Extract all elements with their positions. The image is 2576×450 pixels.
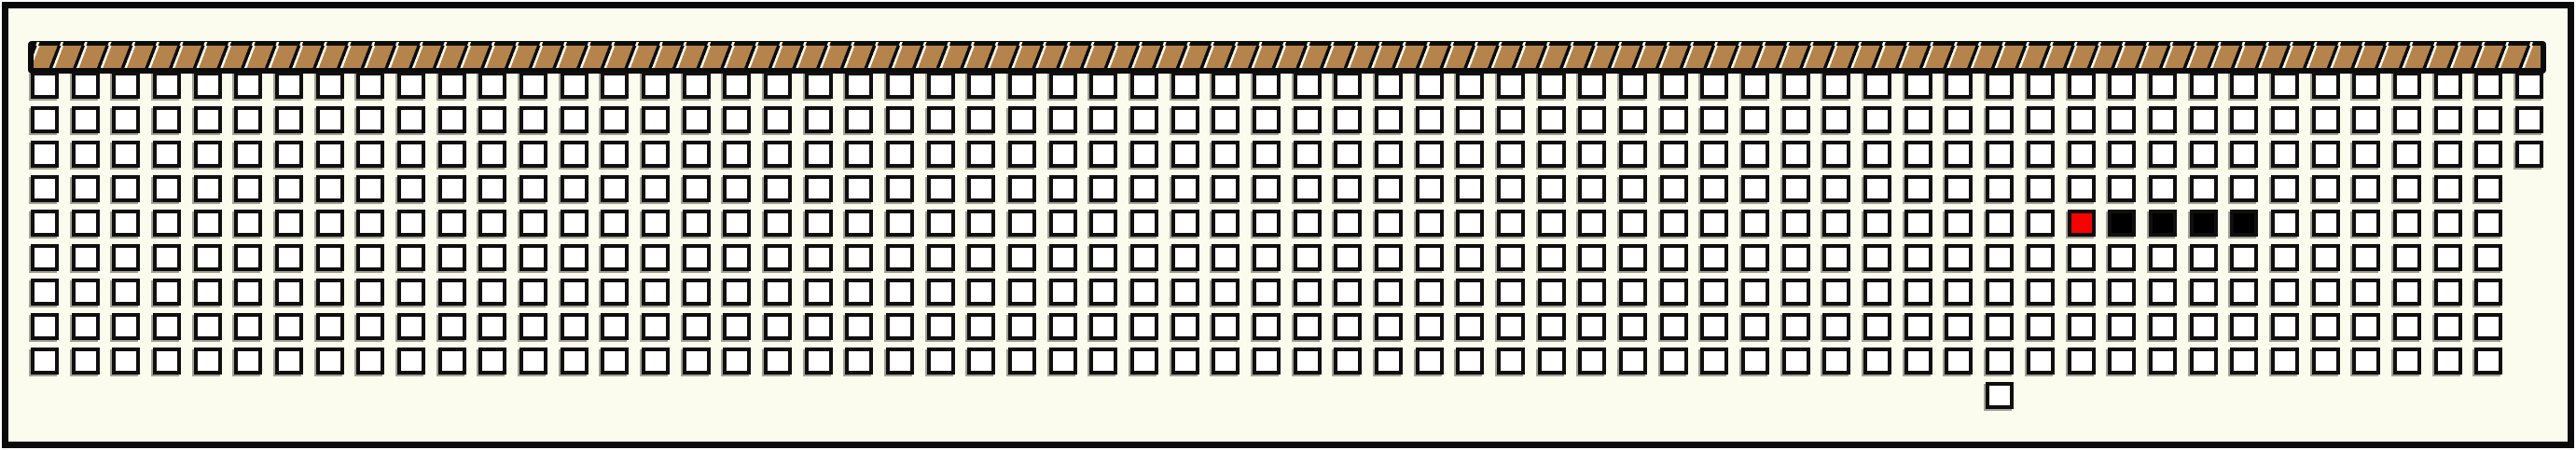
cell-empty[interactable] — [2474, 106, 2502, 133]
cell-empty[interactable] — [561, 210, 589, 237]
cell-empty[interactable] — [1089, 279, 1117, 306]
cell-empty[interactable] — [1130, 348, 1158, 375]
cell-empty[interactable] — [519, 313, 547, 340]
cell-empty[interactable] — [805, 279, 833, 306]
cell-empty[interactable] — [683, 106, 711, 133]
cell-empty[interactable] — [2474, 72, 2502, 99]
cell-empty[interactable] — [1008, 348, 1036, 375]
cell-empty[interactable] — [1660, 106, 1688, 133]
cell-empty[interactable] — [1171, 348, 1199, 375]
cell-empty[interactable] — [438, 279, 466, 306]
cell-empty[interactable] — [1294, 244, 1322, 271]
cell-empty[interactable] — [478, 244, 506, 271]
cell-empty[interactable] — [764, 210, 792, 237]
cell-empty[interactable] — [112, 244, 140, 271]
cell-empty[interactable] — [2312, 210, 2340, 237]
cell-empty[interactable] — [764, 141, 792, 168]
cell-empty[interactable] — [2474, 175, 2502, 202]
cell-empty[interactable] — [2474, 141, 2502, 168]
cell-empty[interactable] — [642, 279, 670, 306]
cell-empty[interactable] — [316, 348, 344, 375]
cell-empty[interactable] — [1660, 244, 1688, 271]
cell-empty[interactable] — [153, 210, 181, 237]
cell-empty[interactable] — [2230, 72, 2258, 99]
cell-empty[interactable] — [805, 348, 833, 375]
cell-empty[interactable] — [1700, 106, 1728, 133]
cell-empty[interactable] — [2190, 279, 2218, 306]
cell-empty[interactable] — [2027, 244, 2055, 271]
cell-empty[interactable] — [1212, 72, 1240, 99]
cell-empty[interactable] — [1904, 210, 1932, 237]
cell-empty[interactable] — [561, 141, 589, 168]
cell-empty[interactable] — [1334, 210, 1362, 237]
cell-empty[interactable] — [1660, 72, 1688, 99]
cell-empty[interactable] — [1700, 313, 1728, 340]
cell-empty[interactable] — [1863, 210, 1891, 237]
cell-empty[interactable] — [1334, 141, 1362, 168]
cell-empty[interactable] — [194, 141, 222, 168]
cell-empty[interactable] — [723, 106, 751, 133]
cell-empty[interactable] — [2434, 141, 2462, 168]
cell-empty[interactable] — [845, 175, 873, 202]
cell-empty[interactable] — [1334, 72, 1362, 99]
cell-empty[interactable] — [886, 72, 914, 99]
cell-empty[interactable] — [1294, 141, 1322, 168]
cell-empty[interactable] — [356, 175, 384, 202]
cell-empty[interactable] — [2312, 141, 2340, 168]
cell-empty[interactable] — [1619, 210, 1647, 237]
cell-empty[interactable] — [1008, 210, 1036, 237]
cell-empty[interactable] — [316, 279, 344, 306]
cell-empty[interactable] — [1822, 210, 1850, 237]
cell-empty[interactable] — [1049, 210, 1077, 237]
cell-empty[interactable] — [2108, 313, 2136, 340]
cell-empty[interactable] — [1456, 348, 1484, 375]
cell-empty[interactable] — [1049, 72, 1077, 99]
cell-empty[interactable] — [2068, 106, 2096, 133]
cell-empty[interactable] — [31, 175, 59, 202]
cell-empty[interactable] — [723, 175, 751, 202]
cell-empty[interactable] — [845, 279, 873, 306]
cell-empty[interactable] — [519, 348, 547, 375]
cell-empty[interactable] — [1456, 175, 1484, 202]
cell-empty[interactable] — [1700, 141, 1728, 168]
cell-empty[interactable] — [31, 210, 59, 237]
cell-empty[interactable] — [397, 244, 425, 271]
cell-empty[interactable] — [764, 72, 792, 99]
cell-empty[interactable] — [1782, 348, 1810, 375]
cell-empty[interactable] — [194, 175, 222, 202]
cell-empty[interactable] — [1008, 175, 1036, 202]
cell-empty[interactable] — [1782, 175, 1810, 202]
cell-empty[interactable] — [2393, 141, 2421, 168]
cell-empty[interactable] — [2027, 348, 2055, 375]
cell-empty[interactable] — [31, 106, 59, 133]
cell-empty[interactable] — [1416, 279, 1444, 306]
cell-empty[interactable] — [397, 141, 425, 168]
cell-empty[interactable] — [2271, 348, 2299, 375]
cell-empty[interactable] — [2230, 279, 2258, 306]
cell-empty[interactable] — [478, 348, 506, 375]
cell-empty[interactable] — [927, 313, 955, 340]
cell-empty[interactable] — [1375, 313, 1403, 340]
cell-empty[interactable] — [2149, 141, 2177, 168]
cell-empty[interactable] — [1008, 106, 1036, 133]
cell-empty[interactable] — [2230, 244, 2258, 271]
cell-empty[interactable] — [2271, 175, 2299, 202]
cell-empty[interactable] — [2068, 348, 2096, 375]
cell-empty[interactable] — [1782, 106, 1810, 133]
cell-empty[interactable] — [234, 106, 262, 133]
cell-empty[interactable] — [1578, 72, 1606, 99]
cell-empty[interactable] — [1375, 348, 1403, 375]
cell-empty[interactable] — [2027, 141, 2055, 168]
cell-empty[interactable] — [234, 348, 262, 375]
cell-empty[interactable] — [2352, 106, 2380, 133]
cell-empty[interactable] — [2230, 313, 2258, 340]
cell-empty[interactable] — [2434, 313, 2462, 340]
cell-empty[interactable] — [2312, 72, 2340, 99]
cell-empty[interactable] — [2027, 313, 2055, 340]
cell-empty[interactable] — [1416, 244, 1444, 271]
cell-empty[interactable] — [153, 141, 181, 168]
cell-empty[interactable] — [2271, 106, 2299, 133]
cell-empty[interactable] — [2108, 175, 2136, 202]
cell-empty[interactable] — [1049, 141, 1077, 168]
cell-empty[interactable] — [927, 279, 955, 306]
cell-empty[interactable] — [967, 279, 995, 306]
cell-empty[interactable] — [683, 348, 711, 375]
cell-empty[interactable] — [2352, 279, 2380, 306]
cell-empty[interactable] — [1253, 244, 1281, 271]
cell-empty[interactable] — [234, 72, 262, 99]
cell-empty[interactable] — [1660, 175, 1688, 202]
cell-empty[interactable] — [1456, 313, 1484, 340]
cell-empty[interactable] — [2190, 72, 2218, 99]
cell-empty[interactable] — [764, 279, 792, 306]
cell-empty[interactable] — [1660, 141, 1688, 168]
cell-empty[interactable] — [519, 106, 547, 133]
cell-empty[interactable] — [1660, 313, 1688, 340]
cell-empty[interactable] — [927, 141, 955, 168]
cell-empty[interactable] — [1253, 210, 1281, 237]
cell-empty[interactable] — [601, 279, 629, 306]
cell-empty[interactable] — [1863, 313, 1891, 340]
cell-empty[interactable] — [1171, 72, 1199, 99]
cell-empty[interactable] — [642, 72, 670, 99]
cell-empty[interactable] — [1456, 244, 1484, 271]
cell-empty[interactable] — [316, 313, 344, 340]
cell-empty[interactable] — [1986, 141, 2014, 168]
cell-empty[interactable] — [1619, 72, 1647, 99]
cell-empty[interactable] — [234, 175, 262, 202]
cell-empty[interactable] — [886, 244, 914, 271]
cell-empty[interactable] — [2474, 313, 2502, 340]
cell-empty[interactable] — [316, 244, 344, 271]
cell-empty[interactable] — [31, 141, 59, 168]
cell-empty[interactable] — [601, 106, 629, 133]
cell-empty[interactable] — [356, 313, 384, 340]
cell-empty[interactable] — [2027, 175, 2055, 202]
cell-empty[interactable] — [194, 313, 222, 340]
cell-empty[interactable] — [2393, 106, 2421, 133]
cell-empty[interactable] — [2352, 210, 2380, 237]
cell-empty[interactable] — [1945, 72, 1973, 99]
cell-empty[interactable] — [1741, 175, 1769, 202]
cell-empty[interactable] — [1049, 313, 1077, 340]
cell-empty[interactable] — [845, 348, 873, 375]
cell-empty[interactable] — [561, 175, 589, 202]
cell-empty[interactable] — [561, 106, 589, 133]
cell-empty[interactable] — [438, 313, 466, 340]
cell-empty[interactable] — [1008, 244, 1036, 271]
cell-empty[interactable] — [1660, 279, 1688, 306]
cell-empty[interactable] — [683, 210, 711, 237]
cell-empty[interactable] — [1294, 348, 1322, 375]
cell-empty[interactable] — [927, 210, 955, 237]
cell-empty[interactable] — [805, 244, 833, 271]
cell-empty[interactable] — [805, 106, 833, 133]
cell-empty[interactable] — [397, 72, 425, 99]
cell-empty[interactable] — [1497, 175, 1525, 202]
cell-empty[interactable] — [1497, 279, 1525, 306]
cell-empty[interactable] — [1130, 244, 1158, 271]
cell-empty[interactable] — [72, 279, 100, 306]
cell-empty[interactable] — [1660, 348, 1688, 375]
cell-empty[interactable] — [478, 279, 506, 306]
cell-empty[interactable] — [1782, 279, 1810, 306]
cell-empty[interactable] — [275, 279, 303, 306]
cell-empty[interactable] — [805, 141, 833, 168]
cell-empty[interactable] — [397, 348, 425, 375]
cell-empty[interactable] — [478, 106, 506, 133]
cell-empty[interactable] — [112, 348, 140, 375]
cell-empty[interactable] — [1416, 106, 1444, 133]
cell-empty[interactable] — [1904, 106, 1932, 133]
cell-empty[interactable] — [601, 210, 629, 237]
cell-empty[interactable] — [112, 210, 140, 237]
cell-empty[interactable] — [1863, 348, 1891, 375]
cell-empty[interactable] — [1008, 72, 1036, 99]
cell-empty[interactable] — [1904, 348, 1932, 375]
cell-empty[interactable] — [764, 313, 792, 340]
cell-empty[interactable] — [927, 106, 955, 133]
cell-empty[interactable] — [2230, 141, 2258, 168]
cell-empty[interactable] — [478, 313, 506, 340]
cell-empty[interactable] — [316, 141, 344, 168]
cell-empty[interactable] — [845, 210, 873, 237]
cell-empty[interactable] — [723, 279, 751, 306]
cell-empty[interactable] — [601, 348, 629, 375]
cell-empty[interactable] — [1212, 313, 1240, 340]
cell-empty[interactable] — [1294, 106, 1322, 133]
cell-empty[interactable] — [397, 279, 425, 306]
cell-empty[interactable] — [2393, 72, 2421, 99]
cell-empty[interactable] — [1008, 279, 1036, 306]
cell-active[interactable] — [2068, 210, 2096, 237]
cell-empty[interactable] — [1497, 210, 1525, 237]
cell-empty[interactable] — [2027, 210, 2055, 237]
cell-empty[interactable] — [1822, 106, 1850, 133]
cell-empty[interactable] — [1578, 313, 1606, 340]
cell-empty[interactable] — [1456, 279, 1484, 306]
cell-empty[interactable] — [1375, 175, 1403, 202]
cell-empty[interactable] — [1212, 244, 1240, 271]
cell-empty[interactable] — [1497, 244, 1525, 271]
cell-empty[interactable] — [1660, 210, 1688, 237]
cell-empty[interactable] — [2474, 279, 2502, 306]
cell-empty[interactable] — [2271, 244, 2299, 271]
cell-empty[interactable] — [356, 141, 384, 168]
cell-empty[interactable] — [2068, 244, 2096, 271]
cell-empty[interactable] — [2352, 141, 2380, 168]
cell-empty[interactable] — [72, 106, 100, 133]
cell-empty[interactable] — [1700, 210, 1728, 237]
cell-empty[interactable] — [1334, 348, 1362, 375]
cell-empty[interactable] — [683, 279, 711, 306]
cell-empty[interactable] — [275, 244, 303, 271]
cell-empty[interactable] — [2108, 279, 2136, 306]
cell-empty[interactable] — [561, 279, 589, 306]
cell-empty[interactable] — [2352, 313, 2380, 340]
cell-empty[interactable] — [1456, 210, 1484, 237]
cell-empty[interactable] — [2230, 348, 2258, 375]
cell-empty[interactable] — [31, 72, 59, 99]
cell-empty[interactable] — [1863, 72, 1891, 99]
cell-empty[interactable] — [886, 141, 914, 168]
cell-empty[interactable] — [1619, 313, 1647, 340]
cell-empty[interactable] — [683, 313, 711, 340]
cell-empty[interactable] — [601, 141, 629, 168]
cell-empty[interactable] — [1538, 244, 1566, 271]
cell-empty[interactable] — [1700, 175, 1728, 202]
cell-empty[interactable] — [1253, 348, 1281, 375]
cell-empty[interactable] — [1904, 244, 1932, 271]
cell-empty[interactable] — [1578, 279, 1606, 306]
cell-empty[interactable] — [1253, 313, 1281, 340]
cell-empty[interactable] — [1822, 141, 1850, 168]
cell-empty[interactable] — [845, 72, 873, 99]
cell-empty[interactable] — [1294, 72, 1322, 99]
cell-empty[interactable] — [275, 175, 303, 202]
cell-empty[interactable] — [1416, 348, 1444, 375]
cell-empty[interactable] — [1497, 313, 1525, 340]
cell-empty[interactable] — [356, 348, 384, 375]
cell-empty[interactable] — [1049, 279, 1077, 306]
cell-empty[interactable] — [275, 141, 303, 168]
cell-empty[interactable] — [1253, 279, 1281, 306]
cell-empty[interactable] — [1416, 72, 1444, 99]
cell-empty[interactable] — [519, 279, 547, 306]
cell-empty[interactable] — [1578, 210, 1606, 237]
cell-empty[interactable] — [478, 210, 506, 237]
cell-empty[interactable] — [2190, 106, 2218, 133]
cell-empty[interactable] — [1171, 175, 1199, 202]
cell-empty[interactable] — [683, 72, 711, 99]
cell-empty[interactable] — [2515, 106, 2543, 133]
cell-empty[interactable] — [2027, 279, 2055, 306]
cell-empty[interactable] — [1619, 106, 1647, 133]
cell-empty[interactable] — [519, 72, 547, 99]
cell-empty[interactable] — [2312, 175, 2340, 202]
cell-empty[interactable] — [1578, 175, 1606, 202]
cell-empty[interactable] — [1375, 210, 1403, 237]
cell-empty[interactable] — [2312, 279, 2340, 306]
cell-empty[interactable] — [1130, 279, 1158, 306]
cell-empty[interactable] — [112, 313, 140, 340]
cell-empty[interactable] — [1822, 72, 1850, 99]
cell-empty[interactable] — [967, 175, 995, 202]
cell-empty[interactable] — [397, 175, 425, 202]
cell-empty[interactable] — [2312, 348, 2340, 375]
cell-empty[interactable] — [1416, 313, 1444, 340]
cell-empty[interactable] — [112, 279, 140, 306]
cell-empty[interactable] — [31, 348, 59, 375]
cell-empty[interactable] — [2149, 244, 2177, 271]
cell-empty[interactable] — [2149, 279, 2177, 306]
cell-empty[interactable] — [927, 244, 955, 271]
cell-empty[interactable] — [1619, 348, 1647, 375]
cell-empty[interactable] — [1334, 313, 1362, 340]
cell-empty[interactable] — [1986, 72, 2014, 99]
cell-empty[interactable] — [845, 106, 873, 133]
cell-empty[interactable] — [1212, 279, 1240, 306]
cell-empty[interactable] — [72, 72, 100, 99]
cell-empty[interactable] — [194, 106, 222, 133]
cell-empty[interactable] — [1375, 141, 1403, 168]
cell-empty[interactable] — [2393, 244, 2421, 271]
cell-empty[interactable] — [1497, 72, 1525, 99]
cell-filled[interactable] — [2230, 210, 2258, 237]
cell-empty[interactable] — [1986, 175, 2014, 202]
cell-empty[interactable] — [2352, 72, 2380, 99]
cell-empty[interactable] — [1863, 175, 1891, 202]
cell-empty[interactable] — [2434, 348, 2462, 375]
cell-empty[interactable] — [1212, 210, 1240, 237]
cell-empty[interactable] — [683, 141, 711, 168]
cell-empty[interactable] — [2271, 313, 2299, 340]
cell-empty[interactable] — [2434, 72, 2462, 99]
cell-empty[interactable] — [642, 141, 670, 168]
cell-empty[interactable] — [2474, 348, 2502, 375]
cell-empty[interactable] — [1945, 141, 1973, 168]
cell-empty[interactable] — [723, 244, 751, 271]
cell-empty[interactable] — [112, 175, 140, 202]
cell-empty[interactable] — [1904, 313, 1932, 340]
cell-empty[interactable] — [2271, 279, 2299, 306]
cell-empty[interactable] — [194, 72, 222, 99]
cell-empty[interactable] — [601, 175, 629, 202]
cell-empty[interactable] — [1375, 106, 1403, 133]
cell-empty[interactable] — [1497, 141, 1525, 168]
cell-empty[interactable] — [438, 210, 466, 237]
cell-empty[interactable] — [1945, 279, 1973, 306]
cell-empty[interactable] — [1171, 279, 1199, 306]
cell-empty[interactable] — [561, 348, 589, 375]
cell-empty[interactable] — [1538, 175, 1566, 202]
cell-empty[interactable] — [2434, 210, 2462, 237]
cell-empty[interactable] — [1986, 244, 2014, 271]
cell-empty[interactable] — [1741, 72, 1769, 99]
cell-empty[interactable] — [1008, 141, 1036, 168]
cell-empty[interactable] — [1171, 244, 1199, 271]
cell-empty[interactable] — [2068, 72, 2096, 99]
cell-empty[interactable] — [1578, 106, 1606, 133]
cell-empty[interactable] — [1578, 348, 1606, 375]
cell-empty[interactable] — [561, 244, 589, 271]
cell-empty[interactable] — [967, 313, 995, 340]
cell-empty[interactable] — [1700, 348, 1728, 375]
